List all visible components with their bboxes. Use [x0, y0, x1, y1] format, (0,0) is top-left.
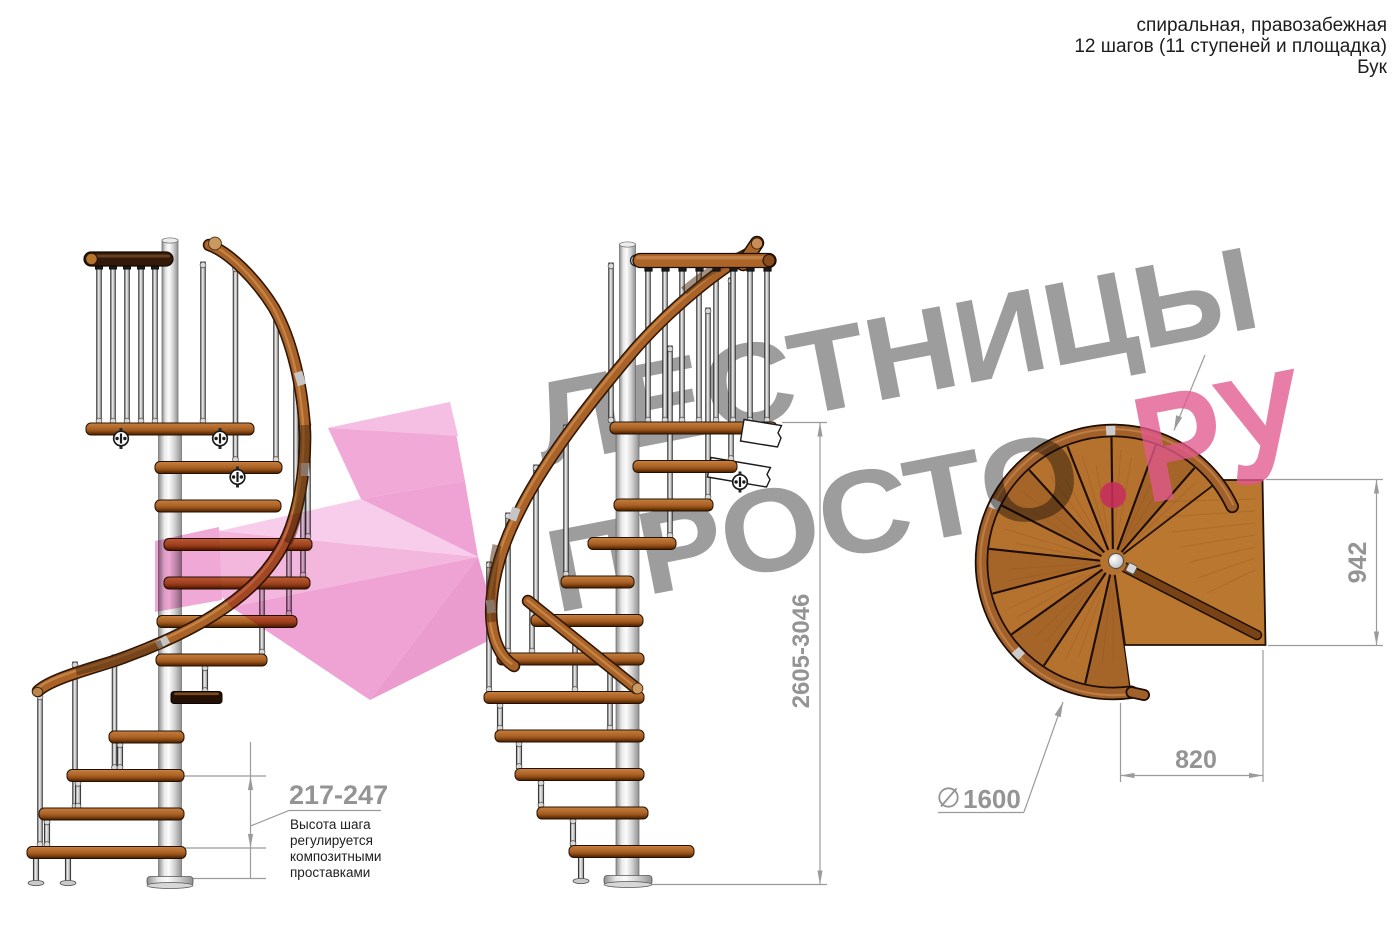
svg-text:проставками: проставками	[290, 865, 370, 880]
svg-text:спиральная, правозабежная: спиральная, правозабежная	[1137, 15, 1387, 36]
svg-text:1600: 1600	[963, 784, 1021, 814]
svg-text:регулируется: регулируется	[290, 833, 373, 848]
svg-text:217-247: 217-247	[289, 780, 388, 810]
svg-text:РУ: РУ	[1120, 337, 1321, 537]
svg-text:820: 820	[1175, 746, 1217, 774]
svg-text:942: 942	[1344, 542, 1372, 584]
svg-text:2605-3046: 2605-3046	[788, 594, 815, 709]
svg-text:композитными: композитными	[290, 849, 381, 864]
svg-text:Бук: Бук	[1357, 57, 1388, 78]
svg-text:Высота шага: Высота шага	[290, 817, 371, 832]
svg-text:12 шагов (11 ступеней и площад: 12 шагов (11 ступеней и площадка)	[1074, 36, 1387, 57]
